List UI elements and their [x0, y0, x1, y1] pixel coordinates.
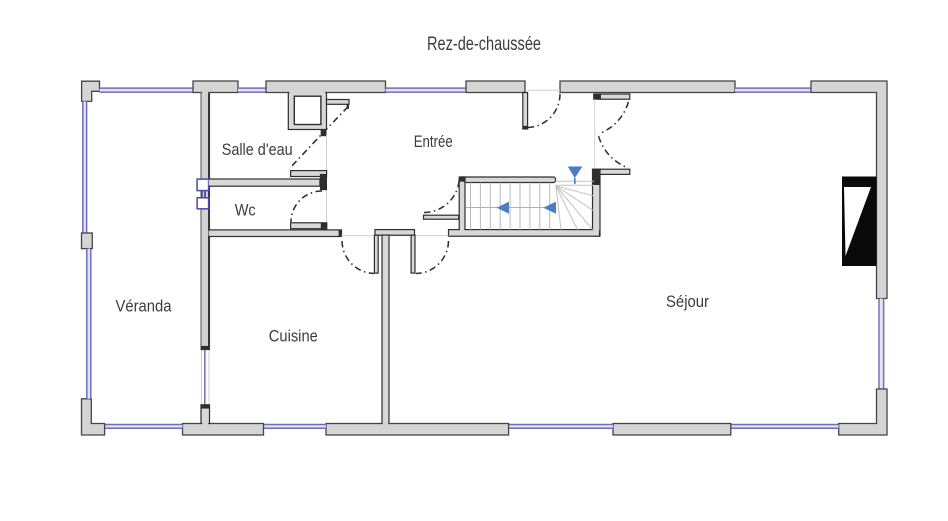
svg-text:Wc: Wc — [235, 201, 256, 220]
svg-text:Cuisine: Cuisine — [269, 327, 318, 346]
svg-text:Véranda: Véranda — [116, 297, 172, 316]
svg-text:Séjour: Séjour — [666, 292, 709, 311]
svg-text:Salle d'eau: Salle d'eau — [222, 140, 293, 159]
svg-text:Entrée: Entrée — [414, 132, 453, 151]
svg-text:Rez-de-chaussée: Rez-de-chaussée — [427, 34, 541, 55]
